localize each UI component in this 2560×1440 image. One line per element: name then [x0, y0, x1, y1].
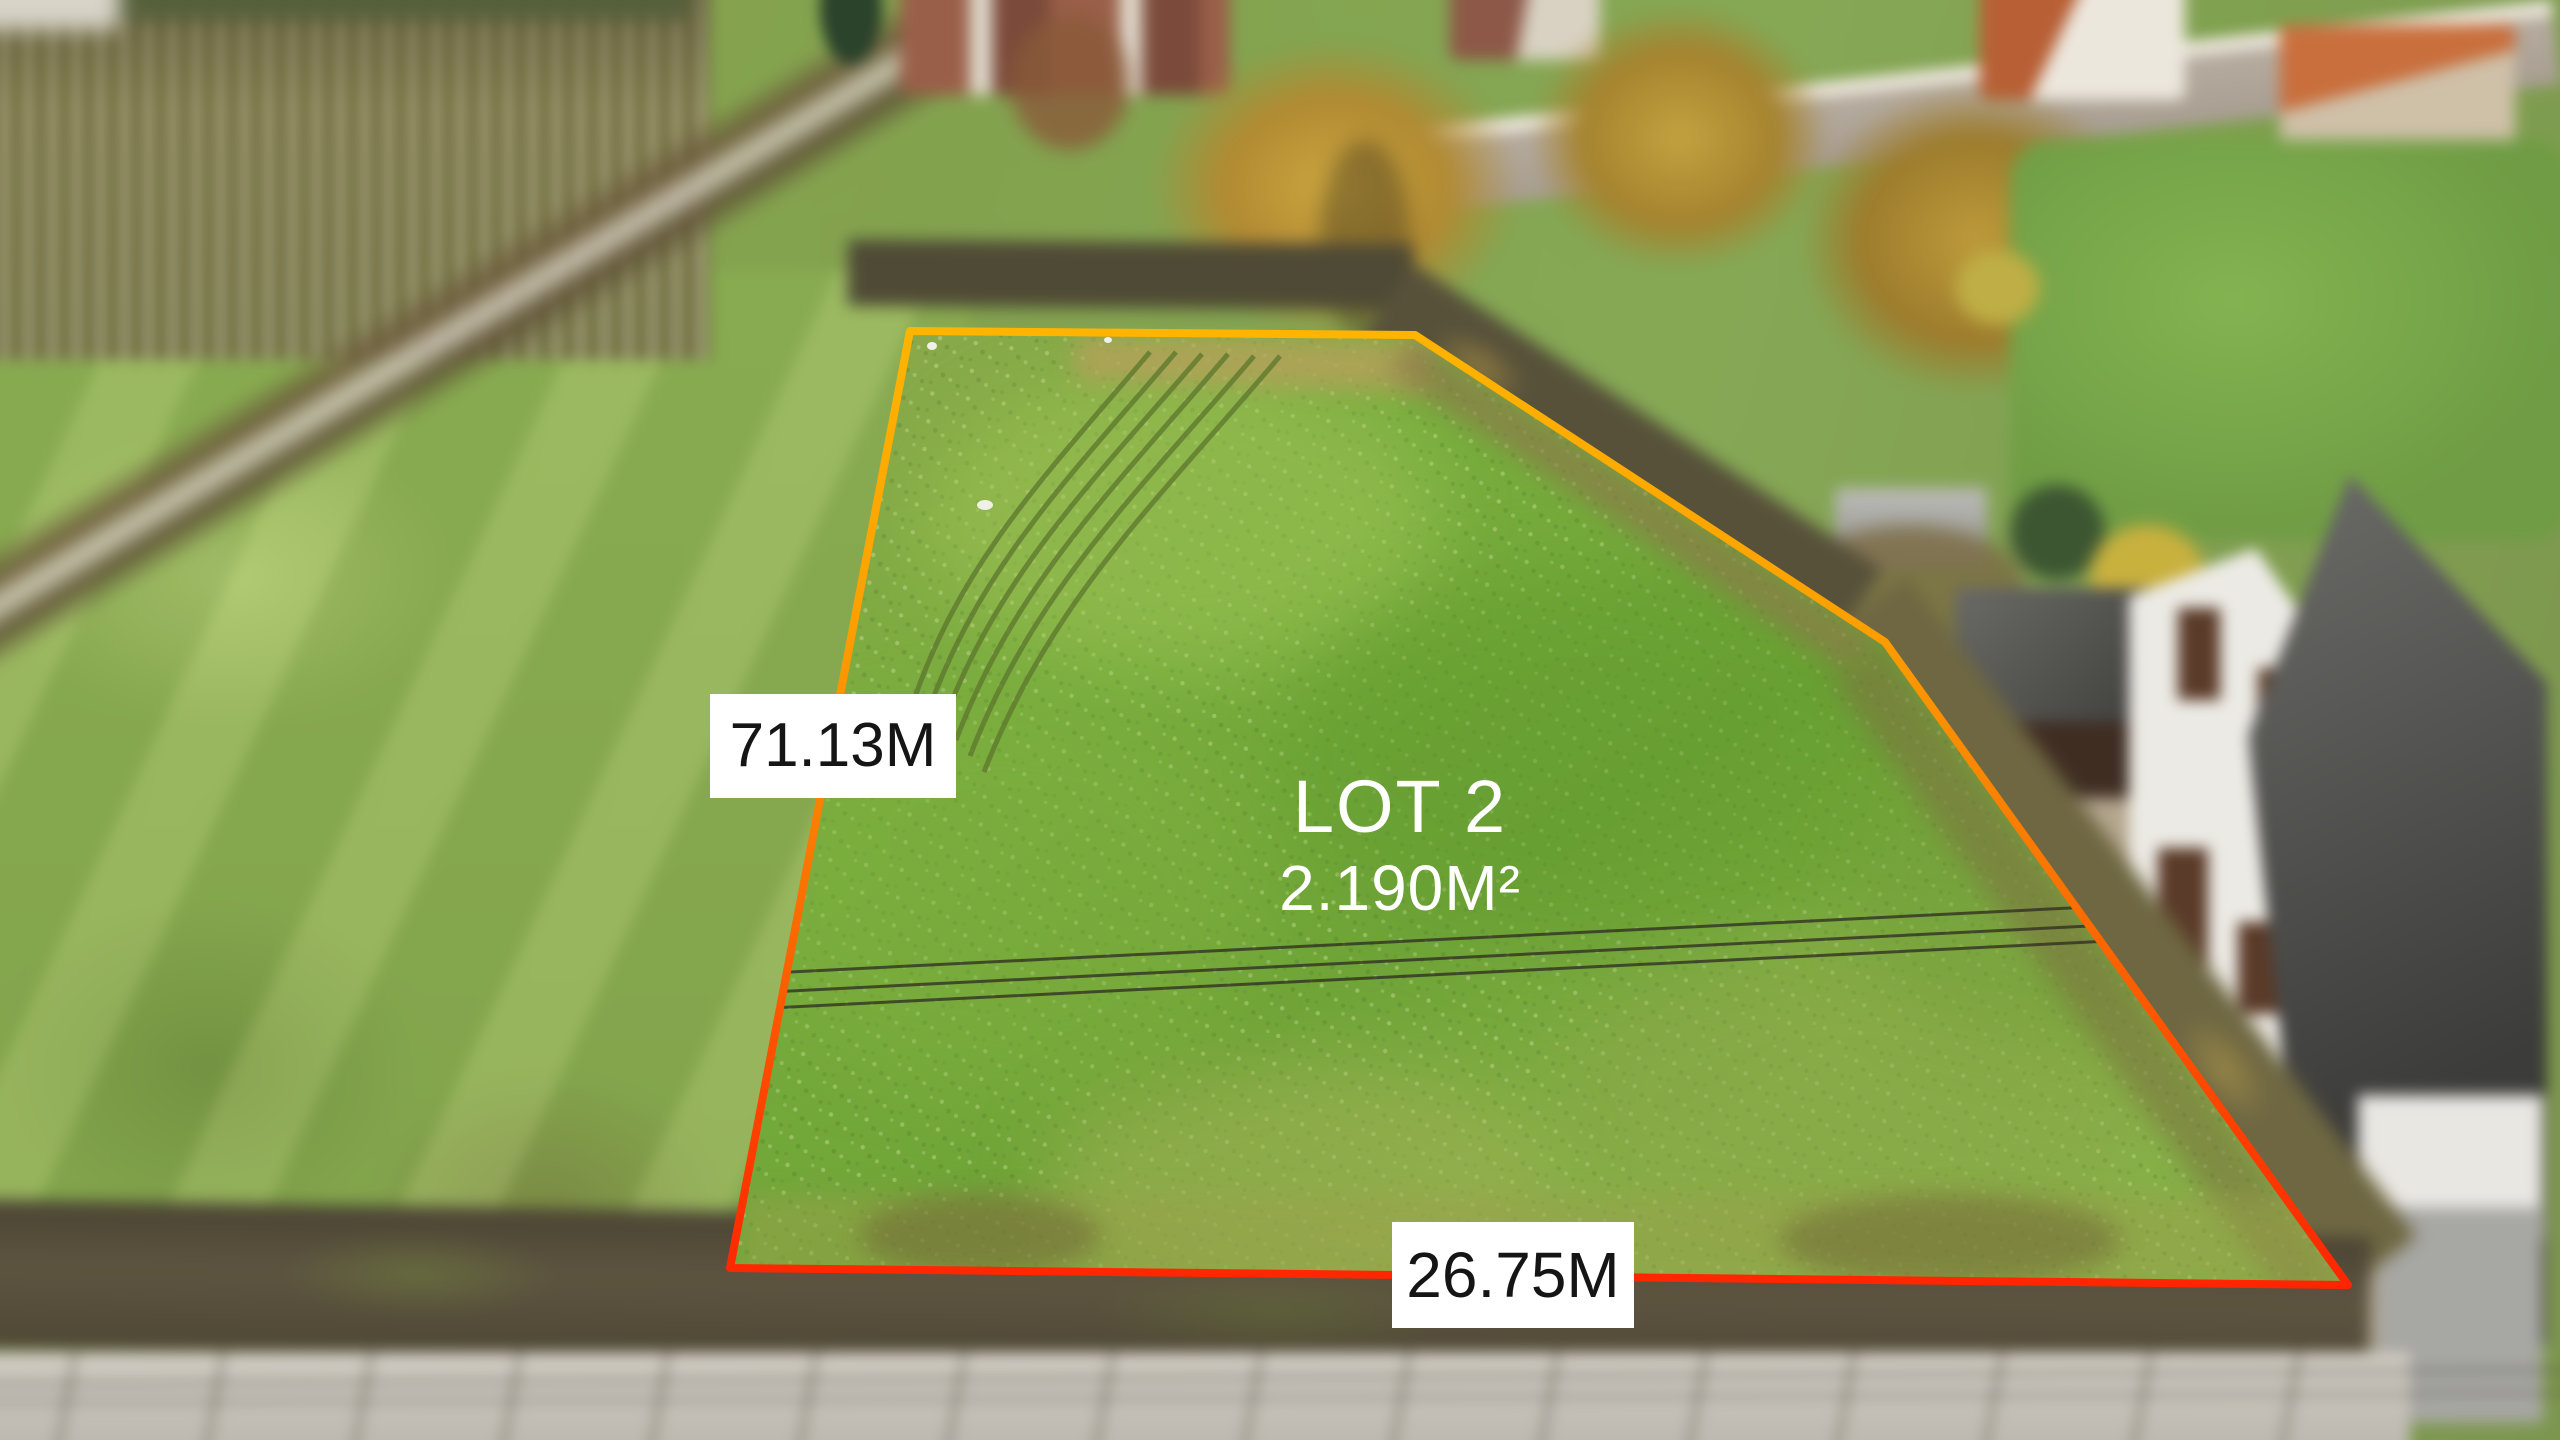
lot-caption: LOT 2 2.190M²: [1240, 770, 1560, 920]
dimension-label-bottom: 26.75M: [1392, 1222, 1634, 1328]
dimension-left-value: 71.13M: [730, 715, 937, 777]
lot-name: LOT 2: [1240, 770, 1560, 844]
lot-area: 2.190M²: [1240, 856, 1560, 920]
lot-parcel-layer: [0, 0, 2560, 1440]
aerial-photo: 71.13M 26.75M LOT 2 2.190M²: [0, 0, 2560, 1440]
dimension-label-left: 71.13M: [710, 694, 956, 798]
dimension-bottom-value: 26.75M: [1406, 1243, 1619, 1307]
